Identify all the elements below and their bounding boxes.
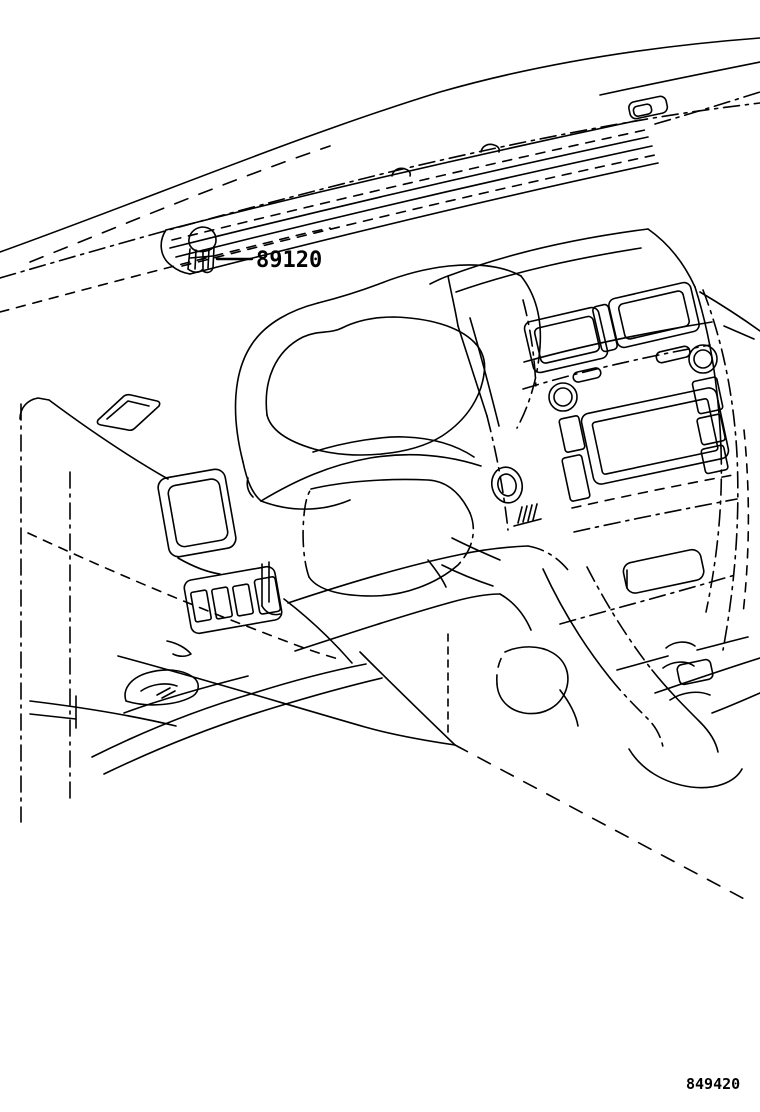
center-console [360,567,760,902]
windshield-base-lines [0,38,760,312]
lower-dash-left [28,533,455,774]
driver-switch-panel [183,565,283,634]
left-side-demister-vent [97,395,159,431]
speaker-grille-hatch [514,504,541,526]
steering-column [262,546,568,663]
stack-side-buttons [559,377,729,502]
center-stack [430,229,760,650]
left-air-vent [157,468,238,574]
a-pillar [20,398,70,822]
radio-slot-right [655,345,691,363]
console-end-cap [629,749,742,788]
parts-diagram-canvas: 89120 [0,0,760,1112]
windshield-defroster-strip [161,95,668,274]
radio-faceplate [523,322,717,411]
dash-left-edge [49,400,168,479]
part-number-label[interactable]: 89120 [256,248,322,273]
console-floor-line [455,745,750,902]
drawing-number-label: 849420 [686,1075,740,1093]
steering-wheel [303,479,500,596]
parts-diagram-page: 89120 [0,0,760,1112]
ignition-switch [488,464,526,507]
cup-holder [497,647,578,726]
display-screen [580,386,730,485]
